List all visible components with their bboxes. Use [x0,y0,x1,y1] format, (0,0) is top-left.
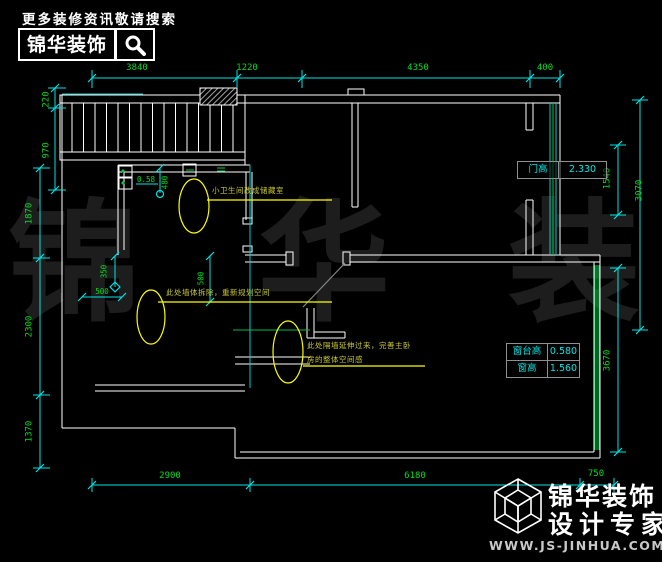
dim-label-right-3670: 3670 [603,338,614,384]
window-height-value: 1.560 [548,361,579,377]
header-logo: 锦华装饰 [18,28,155,61]
dim-label-500h: 500 [87,286,117,297]
annotation-storage: 小卫生间改成储藏室 [212,186,284,195]
window-height-label: 窗高 [507,361,548,377]
door-height-row: 门高 2.330 [518,162,606,178]
closet-wall [307,308,345,338]
dim-right-3070 [632,100,648,330]
search-icon [117,30,153,59]
footer-subtitle: 设计专家 [548,505,662,541]
sill-height-row: 窗台高 0.580 [507,344,579,360]
windows [122,103,600,450]
floor-tag-marks [186,168,225,171]
fixture-dot-b [122,182,125,185]
header-tagline: 更多装修资讯敬请搜索 [22,8,177,28]
window-height-table: 窗台高 0.580 窗高 1.560 [506,343,580,378]
right-door-jambs [526,103,533,255]
dim-top-chain [92,70,560,88]
sill-height-label: 窗台高 [507,344,548,360]
dim-label-350: 350 [99,257,110,287]
door-height-label: 门高 [518,162,559,178]
lower-window-lines [595,265,599,450]
dim-label-left-1870: 1870 [25,191,36,237]
dim-label-top-3840: 3840 [114,63,160,74]
fixture-dot-a [122,170,125,173]
column-hatch [200,88,237,105]
revision-marks [137,179,425,383]
dim-label-right-3070: 3070 [635,168,646,214]
revision-ellipse-2 [137,290,165,344]
storage-jamb-a [243,218,252,224]
center-wall-stub [352,103,358,207]
door-height-table: 门高 2.330 [517,161,607,179]
dim-label-480: 480 [160,168,171,198]
door-jamb-left [286,252,293,265]
interior-wall-b [95,385,245,391]
dim-label-left-970: 970 [42,128,53,174]
window-height-row: 窗高 1.560 [507,360,579,377]
dim-label-bottom-2900: 2900 [147,471,193,482]
footer-website: WWW.JS-JINHUA.COM [489,538,662,553]
storage-jamb-b [243,246,252,252]
dim-label-left-1370: 1370 [25,409,36,455]
interior-wall-a [235,357,310,364]
dim-label-bottom-6180: 6180 [392,471,438,482]
dim-left-outer-chain [33,168,50,468]
door-swing [303,263,345,307]
header-brand-text: 锦华装饰 [20,30,114,59]
revision-ellipse-1 [179,179,209,233]
sill-height-value: 0.580 [548,344,579,360]
walls [60,88,600,458]
cube-logo-icon [490,476,546,536]
annotation-partition-line2: 房的整体空间感 [307,355,363,364]
bottom-walls [62,428,600,458]
top-wall-bump [348,89,364,95]
door-jamb-right [343,252,350,265]
annotation-demolish: 此处墙体拆除，重新规划空间 [166,288,270,297]
stair-treads [72,103,233,152]
dim-label-top-1220: 1220 [224,63,270,74]
floorplan-canvas: 锦 华 装 饰 [0,0,662,562]
dim-label-top-400: 400 [522,63,568,74]
annotation-partition-line1: 此处隔墙延伸过来，完善主卧 [307,341,411,350]
dim-label-left-220: 220 [42,77,53,123]
top-wall [245,95,560,103]
dim-label-top-4350: 4350 [395,63,441,74]
dim-label-058: 0.58 [131,174,161,185]
door-height-value: 2.330 [559,162,606,178]
middle-wall [245,255,600,262]
dim-label-left-2300: 2300 [25,304,36,350]
